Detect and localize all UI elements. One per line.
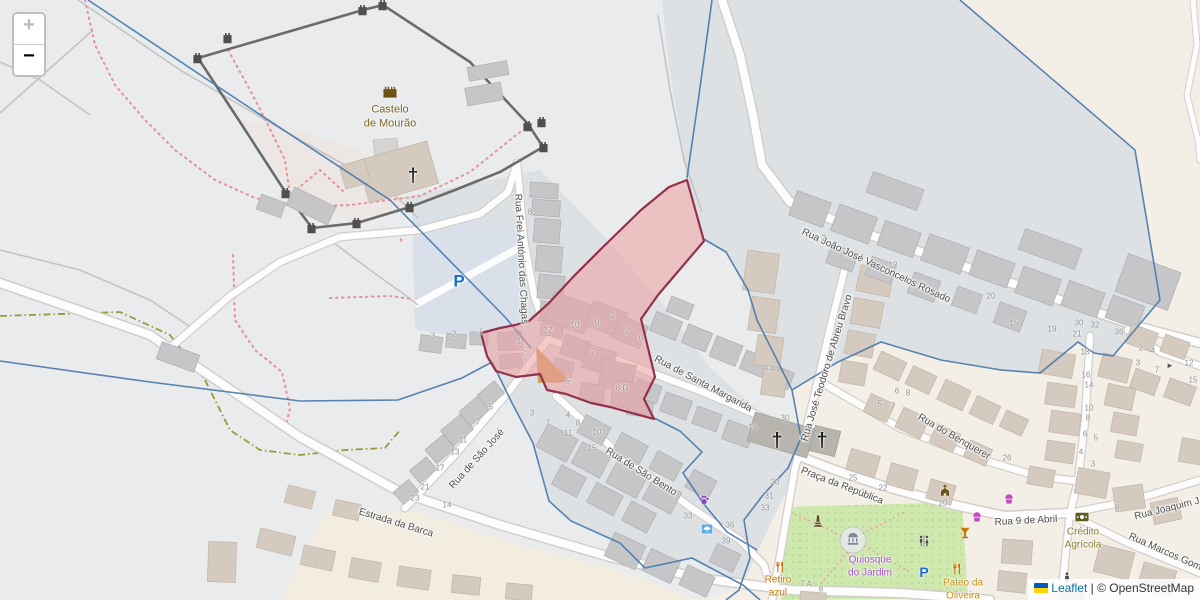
building [1045,382,1078,408]
building [1110,412,1139,436]
map-canvas[interactable]: Rua Frei António das ChagasRua de Santa … [0,0,1200,600]
building [533,218,561,244]
building [1045,440,1076,464]
zoom-in-button[interactable]: + [14,14,44,44]
building [505,583,532,600]
leaflet-map-app: Rua Frei António das ChagasRua de Santa … [0,0,1200,600]
map-tiles [0,0,1200,600]
building [742,250,779,294]
building [748,296,780,334]
building [451,575,481,596]
building [838,360,867,386]
building [800,591,827,600]
building [397,566,431,590]
building [207,542,236,583]
building [1001,539,1033,565]
zoom-control: + − [12,12,46,77]
building [1049,410,1082,436]
leaflet-link[interactable]: Leaflet [1051,581,1087,595]
building [1074,467,1110,498]
attribution-separator: | [1087,581,1097,595]
building [1178,438,1200,467]
zoom-out-button[interactable]: − [14,45,44,75]
attribution-bar: Leaflet | © OpenStreetMap [1028,579,1200,600]
building [531,199,560,217]
building [850,298,884,329]
building [445,333,466,349]
building [530,182,559,199]
building [1112,484,1145,512]
osm-attribution: © OpenStreetMap [1097,581,1194,595]
building [844,330,876,358]
building [535,245,563,273]
building [997,571,1027,594]
building [754,334,784,367]
building [419,335,443,354]
ukraine-flag-icon [1034,583,1048,593]
